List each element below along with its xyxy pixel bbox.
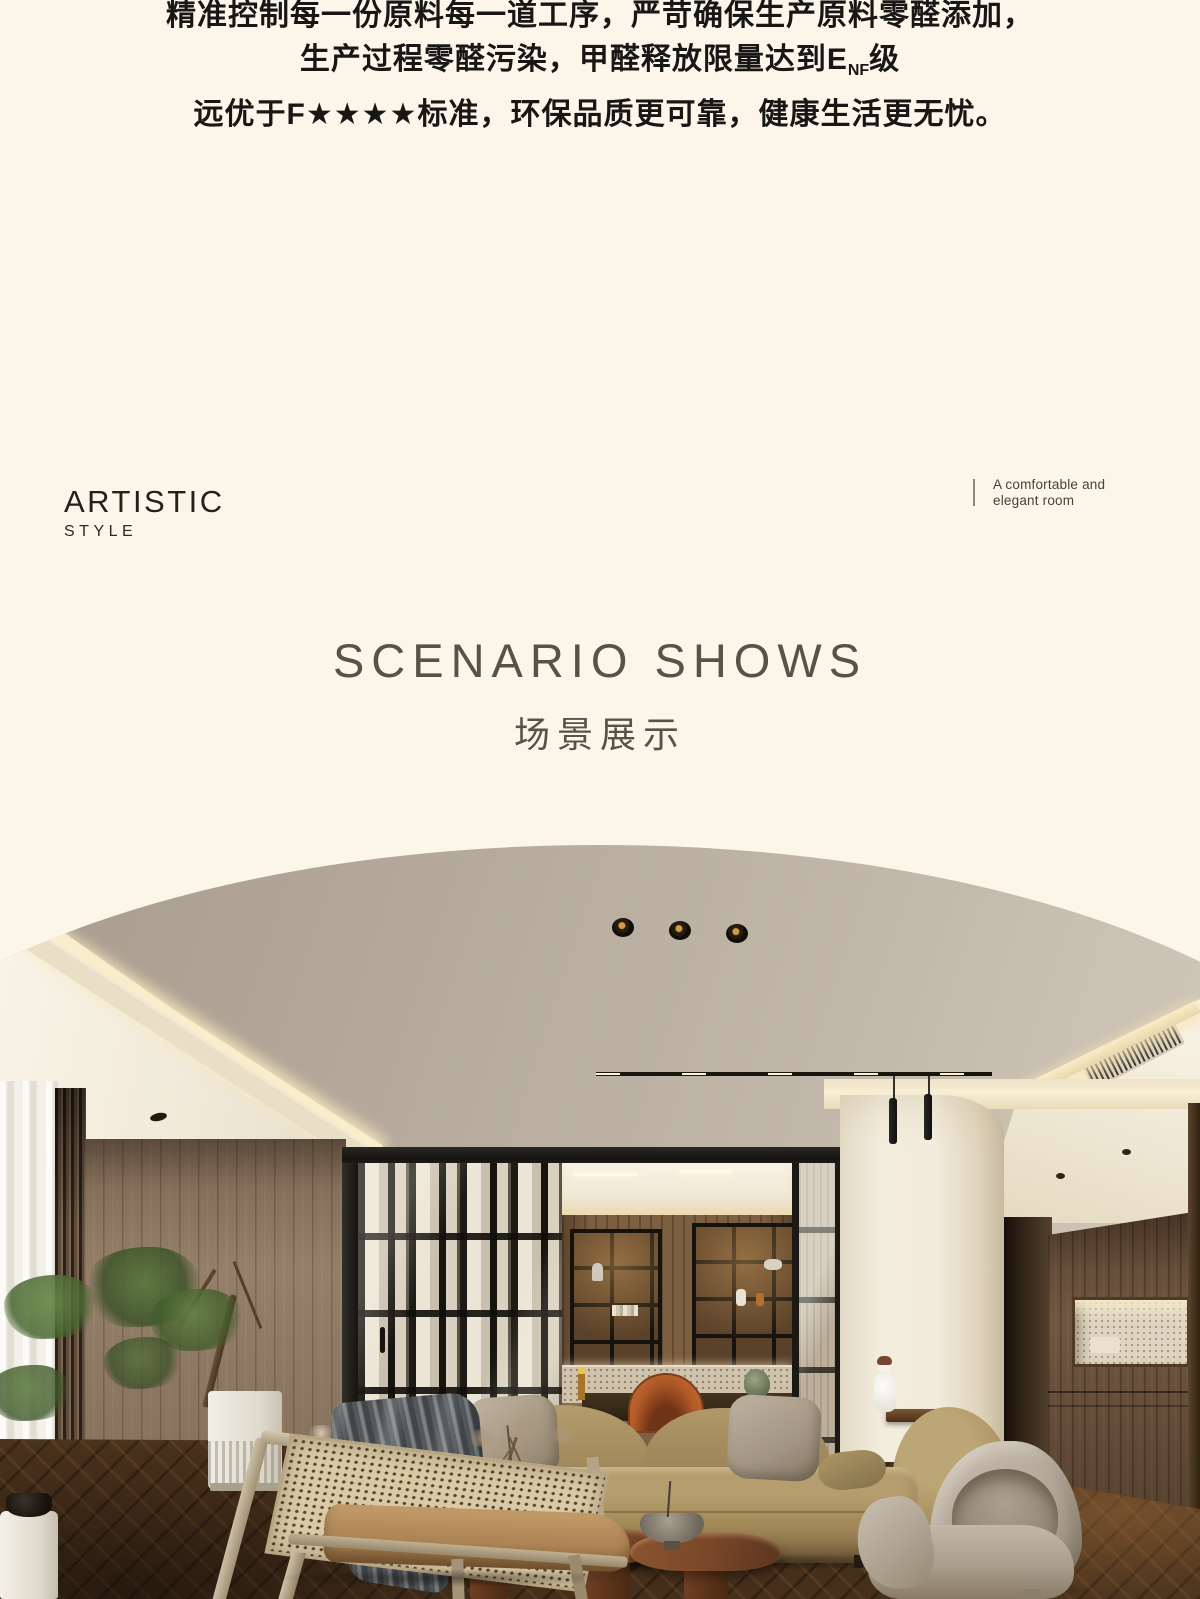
section-title-en: SCENARIO SHOWS (0, 633, 1200, 688)
intro-line-3: 远优于F★★★★标准，环保品质更可靠，健康生活更无忧。 (0, 93, 1200, 137)
dried-flower-cluster (548, 1427, 578, 1443)
ceiling-spotlight-icon (669, 921, 691, 940)
recessed-spotlight-icon (1056, 1173, 1065, 1179)
track-light (596, 1072, 992, 1076)
pendant-light-icon (924, 1094, 932, 1140)
note-divider-bar (973, 479, 975, 506)
recessed-spotlight-icon (1122, 1149, 1131, 1155)
intro-line-2-text: 生产过程零醛污染，甲醛释放限量达到E (300, 43, 848, 76)
pendant-light-icon (889, 1098, 897, 1144)
dried-flower-cluster (506, 1415, 544, 1435)
chair-shadow (270, 1569, 630, 1587)
figurine (592, 1263, 603, 1281)
led-strip-icon (574, 1173, 638, 1176)
ceiling-spotlight-icon (612, 918, 634, 937)
intro-paragraph: 精准控制每一份原料每一道工序，严苛确保生产原料零醛添加， 生产过程零醛污染，甲醛… (0, 0, 1200, 137)
book-row (612, 1305, 638, 1316)
scenario-photo (0, 845, 1200, 1599)
section-header: SCENARIO SHOWS 场景展示 (0, 633, 1200, 758)
ceiling-spotlight-icon (726, 924, 748, 943)
cabinet-seam (1048, 1405, 1200, 1407)
doll-hair (877, 1356, 892, 1365)
section-title-zh: 场景展示 (0, 706, 1200, 758)
led-strip-icon (680, 1170, 732, 1173)
black-bowl (6, 1493, 52, 1517)
pendant-wire (928, 1076, 930, 1096)
track-light-glow (596, 1073, 992, 1075)
cabinet-seam (1048, 1391, 1200, 1393)
lit-stone-niche (1072, 1297, 1190, 1367)
product-detail-page: 精准控制每一份原料每一道工序，严苛确保生产原料零醛添加， 生产过程零醛污染，甲醛… (0, 0, 1200, 1599)
ornament (764, 1259, 782, 1270)
living-room-scene (0, 845, 1200, 1599)
intro-line-2: 生产过程零醛污染，甲醛释放限量达到ENF级 (0, 38, 1200, 93)
artistic-style-block: ARTISTIC STYLE (64, 484, 225, 541)
white-side-table (0, 1511, 58, 1599)
room-note: A comfortable and elegant room (973, 477, 1105, 508)
intro-line-2-suffix: 级 (869, 43, 900, 76)
arched-photo-mask (0, 845, 1200, 1599)
white-vase (736, 1289, 746, 1306)
doll-figurine (874, 1372, 896, 1412)
enf-grade-subscript: NF (848, 62, 869, 79)
style-subtitle: STYLE (64, 523, 225, 541)
armchair-leg (1022, 1589, 1042, 1599)
pendant-wire (893, 1076, 895, 1100)
study-ceiling (562, 1163, 792, 1215)
sofa-pillow (726, 1394, 822, 1483)
room-note-text: A comfortable and elegant room (993, 477, 1105, 508)
door-handle (380, 1327, 385, 1353)
stone-bowl-foot (664, 1541, 680, 1550)
niche-object (1090, 1337, 1120, 1353)
brass-candlestick (578, 1368, 585, 1400)
artistic-title: ARTISTIC (64, 484, 225, 520)
intro-line-1: 精准控制每一份原料每一道工序，严苛确保生产原料零醛添加， (0, 0, 1200, 38)
amber-bottle (756, 1293, 764, 1306)
tree-foliage (104, 1337, 184, 1389)
dried-flower-cluster (466, 1429, 500, 1447)
